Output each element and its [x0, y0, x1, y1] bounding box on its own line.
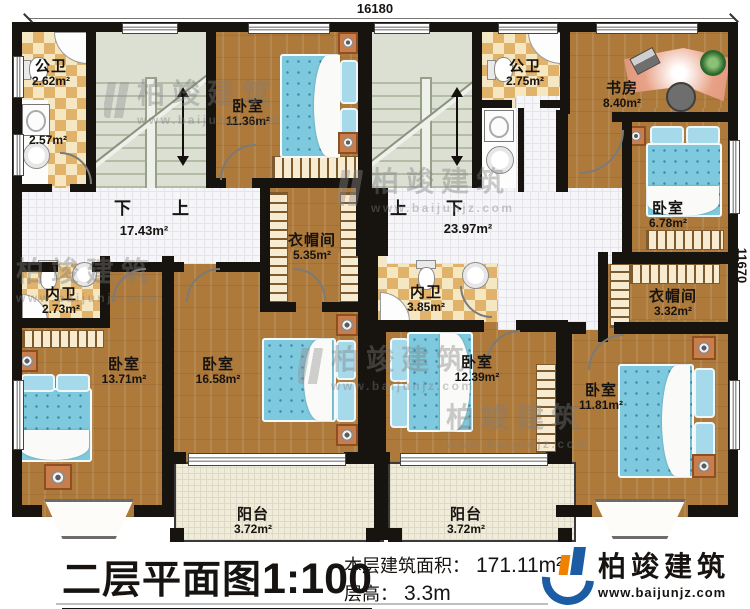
- wall: [162, 256, 174, 506]
- wall: [358, 320, 484, 332]
- balcony-door-window: [400, 453, 548, 466]
- wall: [358, 332, 386, 462]
- stair-label-up: 上: [390, 194, 407, 219]
- wall: [472, 22, 482, 188]
- window: [13, 380, 24, 450]
- balcony-door-window: [188, 453, 346, 466]
- wall: [556, 322, 586, 334]
- window: [13, 134, 24, 176]
- floor-height-row: 层高：3.3m: [344, 580, 563, 608]
- company-name: 柏竣建筑: [598, 545, 730, 585]
- stair-rail: [145, 77, 157, 188]
- room-label-bedroom-mid-left: 卧室 16.58m²: [182, 356, 254, 387]
- window: [248, 23, 330, 34]
- window: [498, 23, 558, 34]
- floor-area-label: 本层建筑面积：: [344, 556, 470, 576]
- window: [122, 23, 178, 34]
- room-label-study: 书房 8.40m²: [586, 80, 658, 111]
- room-label-closet-right: 衣帽间 3.32m²: [632, 288, 714, 319]
- wall: [134, 505, 174, 517]
- wall: [540, 100, 562, 108]
- company-logo-text: 柏竣建筑 www.baijunjz.com: [598, 545, 730, 600]
- wall: [518, 108, 524, 192]
- sink: [462, 262, 489, 289]
- stair-label-up: 上: [172, 194, 189, 219]
- office-chair: [666, 82, 696, 112]
- company-website: www.baijunjz.com: [598, 585, 730, 600]
- wall: [12, 505, 42, 517]
- balcony-post: [366, 528, 380, 542]
- room-label-balcony-right: 阳台 3.72m²: [430, 506, 502, 537]
- stair-label-down: 下: [446, 194, 463, 219]
- company-logo-icon: [540, 543, 592, 601]
- stair-landing: [96, 30, 206, 77]
- nightstand: [336, 314, 358, 336]
- staircase-right: [372, 30, 480, 188]
- nightstand: [692, 454, 716, 478]
- stair-direction-arrow: [182, 90, 184, 163]
- dimension-top-label: 16180: [340, 1, 410, 16]
- wall: [12, 184, 52, 192]
- wall: [622, 118, 632, 262]
- stair-direction-arrow: [456, 90, 458, 163]
- balcony-post: [170, 528, 184, 542]
- wardrobe: [610, 264, 630, 328]
- wall: [216, 262, 260, 272]
- wall: [614, 322, 738, 334]
- wall: [12, 262, 58, 272]
- wall: [688, 505, 738, 517]
- wall: [546, 452, 560, 464]
- stair-label-down: 下: [114, 194, 131, 219]
- wall: [100, 256, 110, 322]
- floor-height-value: 3.3m: [404, 582, 451, 605]
- wall: [556, 110, 568, 192]
- room-label-balcony-left: 阳台 3.72m²: [217, 506, 289, 537]
- company-logo: 柏竣建筑 www.baijunjz.com: [540, 543, 730, 601]
- nightstand: [338, 32, 358, 54]
- sink: [486, 146, 514, 174]
- wall: [358, 252, 378, 322]
- plan-name: 二层平面图: [62, 559, 262, 602]
- staircase-left: [96, 30, 206, 188]
- room-label-public-bath-right: 公卫 2.75m²: [494, 58, 556, 89]
- room-label-bedroom-mid-right: 卧室 12.39m²: [440, 354, 514, 385]
- room-label-hall-left: 17.43m²: [108, 224, 180, 239]
- wall: [260, 186, 270, 312]
- wall: [356, 188, 388, 256]
- window: [729, 140, 740, 214]
- stair-landing: [372, 30, 480, 77]
- washing-machine: [484, 110, 514, 142]
- room-label-bedroom-top: 卧室 11.36m²: [212, 98, 284, 129]
- window: [596, 23, 698, 34]
- wall: [598, 252, 608, 342]
- room-label-public-bath-left: 公卫 2.62m²: [22, 58, 80, 89]
- wall: [12, 318, 110, 328]
- stair-rail: [420, 77, 432, 188]
- wall: [86, 22, 96, 188]
- wall: [252, 178, 372, 188]
- nightstand: [336, 424, 358, 446]
- bay-window: [38, 499, 140, 539]
- wall: [358, 22, 372, 190]
- balcony-post: [558, 528, 572, 542]
- plant: [700, 50, 726, 76]
- wall: [482, 100, 512, 108]
- room-label-bedroom-bottom-right: 卧室 11.81m²: [564, 382, 638, 413]
- bay-window: [588, 499, 692, 539]
- wardrobe: [22, 330, 104, 348]
- room-label-hall-right: 23.97m²: [430, 222, 506, 237]
- balcony-post: [388, 528, 402, 542]
- wall: [174, 452, 186, 464]
- wall: [260, 302, 296, 312]
- plan-stats: 本层建筑面积：171.11m² 层高：3.3m: [344, 552, 563, 609]
- wall: [612, 252, 738, 264]
- room-label-closet-center: 衣帽间 5.35m²: [272, 232, 352, 263]
- floor-plan-page: 公卫 2.62m² 2.57m² 卧室 11.36m² 下 上 17.43m² …: [0, 0, 750, 609]
- room-label-bedroom-right-top: 卧室 6.78m²: [632, 200, 704, 231]
- nightstand: [692, 336, 716, 360]
- wall: [344, 452, 390, 464]
- wardrobe: [536, 364, 556, 454]
- bed: [262, 338, 358, 422]
- washing-machine: [22, 104, 50, 136]
- nightstand: [44, 464, 72, 490]
- window: [729, 380, 740, 450]
- room-label-private-bath-right: 内卫 3.85m²: [392, 284, 460, 315]
- nightstand: [338, 132, 358, 154]
- room-label-laundry-left: 2.57m²: [24, 134, 72, 148]
- dimension-right-label: 11670: [735, 236, 750, 296]
- floor-height-label: 层高：: [344, 584, 398, 604]
- wall: [70, 184, 96, 192]
- plan-title: 二层平面图1:100: [62, 549, 372, 609]
- wardrobe: [630, 264, 720, 284]
- room-label-bedroom-left: 卧室 13.71m²: [88, 356, 160, 387]
- room-label-private-bath-left: 内卫 2.73m²: [30, 286, 92, 317]
- wall: [556, 505, 592, 517]
- wardrobe: [272, 156, 360, 180]
- floor-area-row: 本层建筑面积：171.11m²: [344, 552, 563, 580]
- dimension-line-top: [28, 18, 734, 19]
- window: [374, 23, 430, 34]
